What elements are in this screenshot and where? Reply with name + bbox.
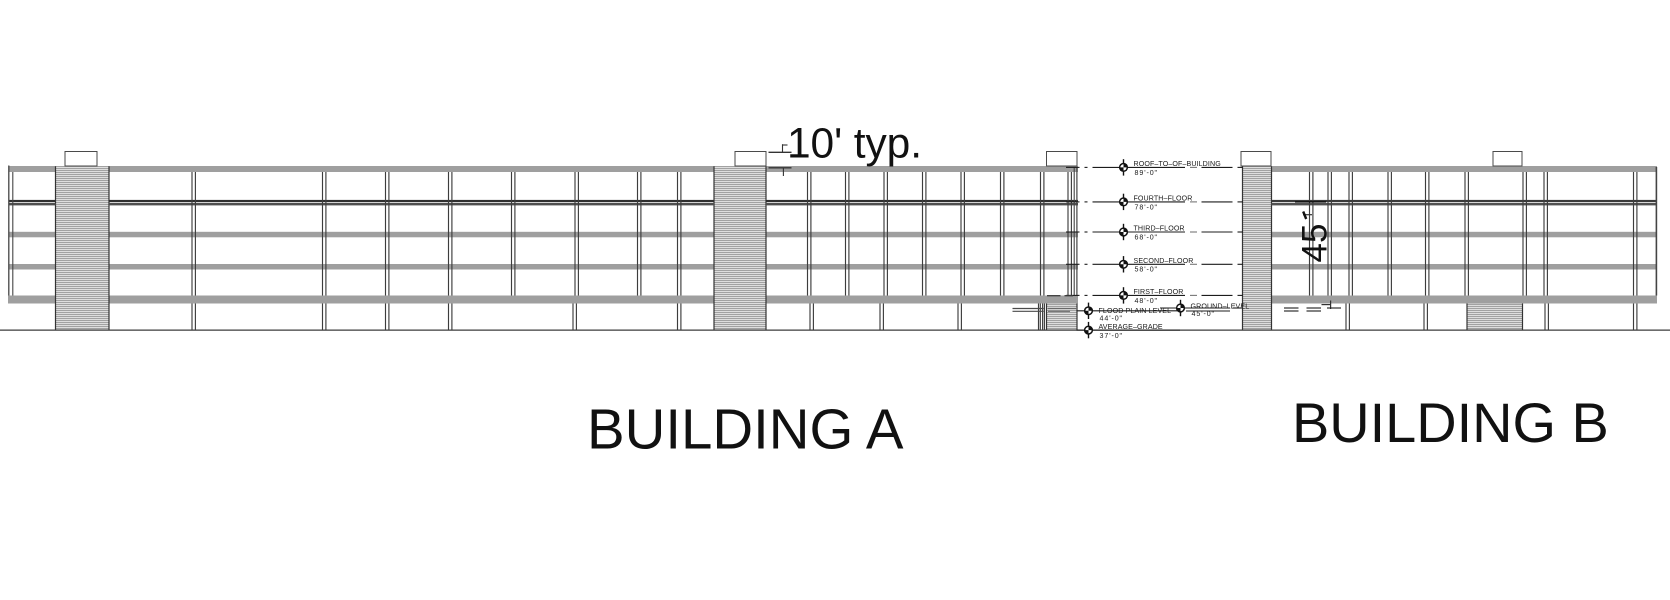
svg-text:GROUND–LEVEL: GROUND–LEVEL bbox=[1191, 302, 1250, 310]
svg-text:68'-0": 68'-0" bbox=[1135, 233, 1158, 241]
svg-text:89'-0": 89'-0" bbox=[1135, 169, 1158, 177]
svg-text:SECOND–FLOOR: SECOND–FLOOR bbox=[1134, 257, 1194, 265]
svg-text:45: 45 bbox=[1296, 224, 1335, 263]
svg-text:44'-0": 44'-0" bbox=[1100, 314, 1123, 322]
svg-text:FIRST–FLOOR: FIRST–FLOOR bbox=[1134, 288, 1184, 296]
svg-text:AVERAGE–GRADE: AVERAGE–GRADE bbox=[1099, 323, 1163, 331]
svg-text:58'-0": 58'-0" bbox=[1135, 266, 1158, 274]
svg-text:BUILDING B: BUILDING B bbox=[1292, 391, 1609, 454]
svg-text:THIRD–FLOOR: THIRD–FLOOR bbox=[1134, 225, 1185, 233]
svg-text:ROOF–TO–OF–BUILDING: ROOF–TO–OF–BUILDING bbox=[1134, 160, 1221, 168]
svg-text:78'-0": 78'-0" bbox=[1135, 203, 1158, 211]
svg-text:10' typ.: 10' typ. bbox=[787, 120, 922, 167]
svg-text:45'-0": 45'-0" bbox=[1192, 310, 1215, 318]
svg-text:FOURTH–FLOOR: FOURTH–FLOOR bbox=[1134, 195, 1193, 203]
svg-text:BUILDING A: BUILDING A bbox=[587, 398, 904, 461]
svg-text:37'-0": 37'-0" bbox=[1100, 332, 1123, 340]
svg-text:48'-0": 48'-0" bbox=[1135, 297, 1158, 305]
